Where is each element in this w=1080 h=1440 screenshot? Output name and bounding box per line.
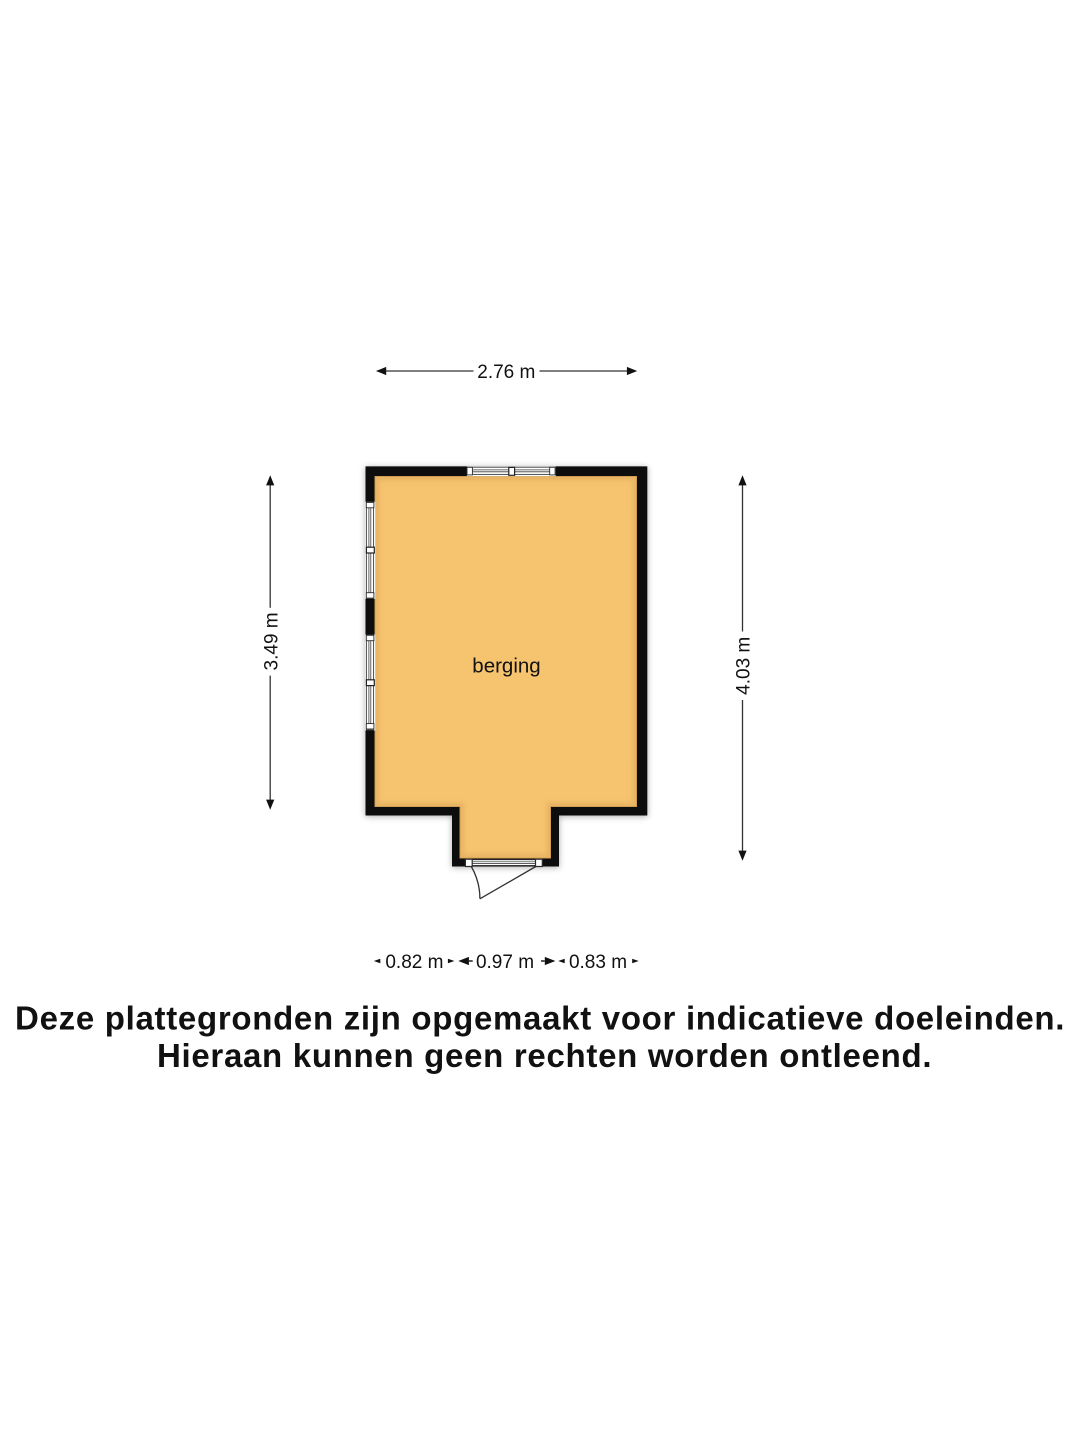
svg-text:4.03 m: 4.03 m bbox=[734, 637, 755, 695]
svg-text:berging: berging bbox=[472, 654, 540, 677]
svg-text:Deze plattegronden zijn opgema: Deze plattegronden zijn opgemaakt voor i… bbox=[15, 999, 1065, 1036]
svg-text:Hieraan kunnen geen rechten wo: Hieraan kunnen geen rechten worden ontle… bbox=[157, 1037, 932, 1074]
svg-text:0.83 m: 0.83 m bbox=[569, 952, 627, 973]
svg-text:2.76 m: 2.76 m bbox=[477, 362, 535, 383]
svg-text:3.49 m: 3.49 m bbox=[261, 612, 282, 670]
svg-text:0.82 m: 0.82 m bbox=[385, 952, 443, 973]
svg-text:0.97 m: 0.97 m bbox=[476, 952, 534, 973]
